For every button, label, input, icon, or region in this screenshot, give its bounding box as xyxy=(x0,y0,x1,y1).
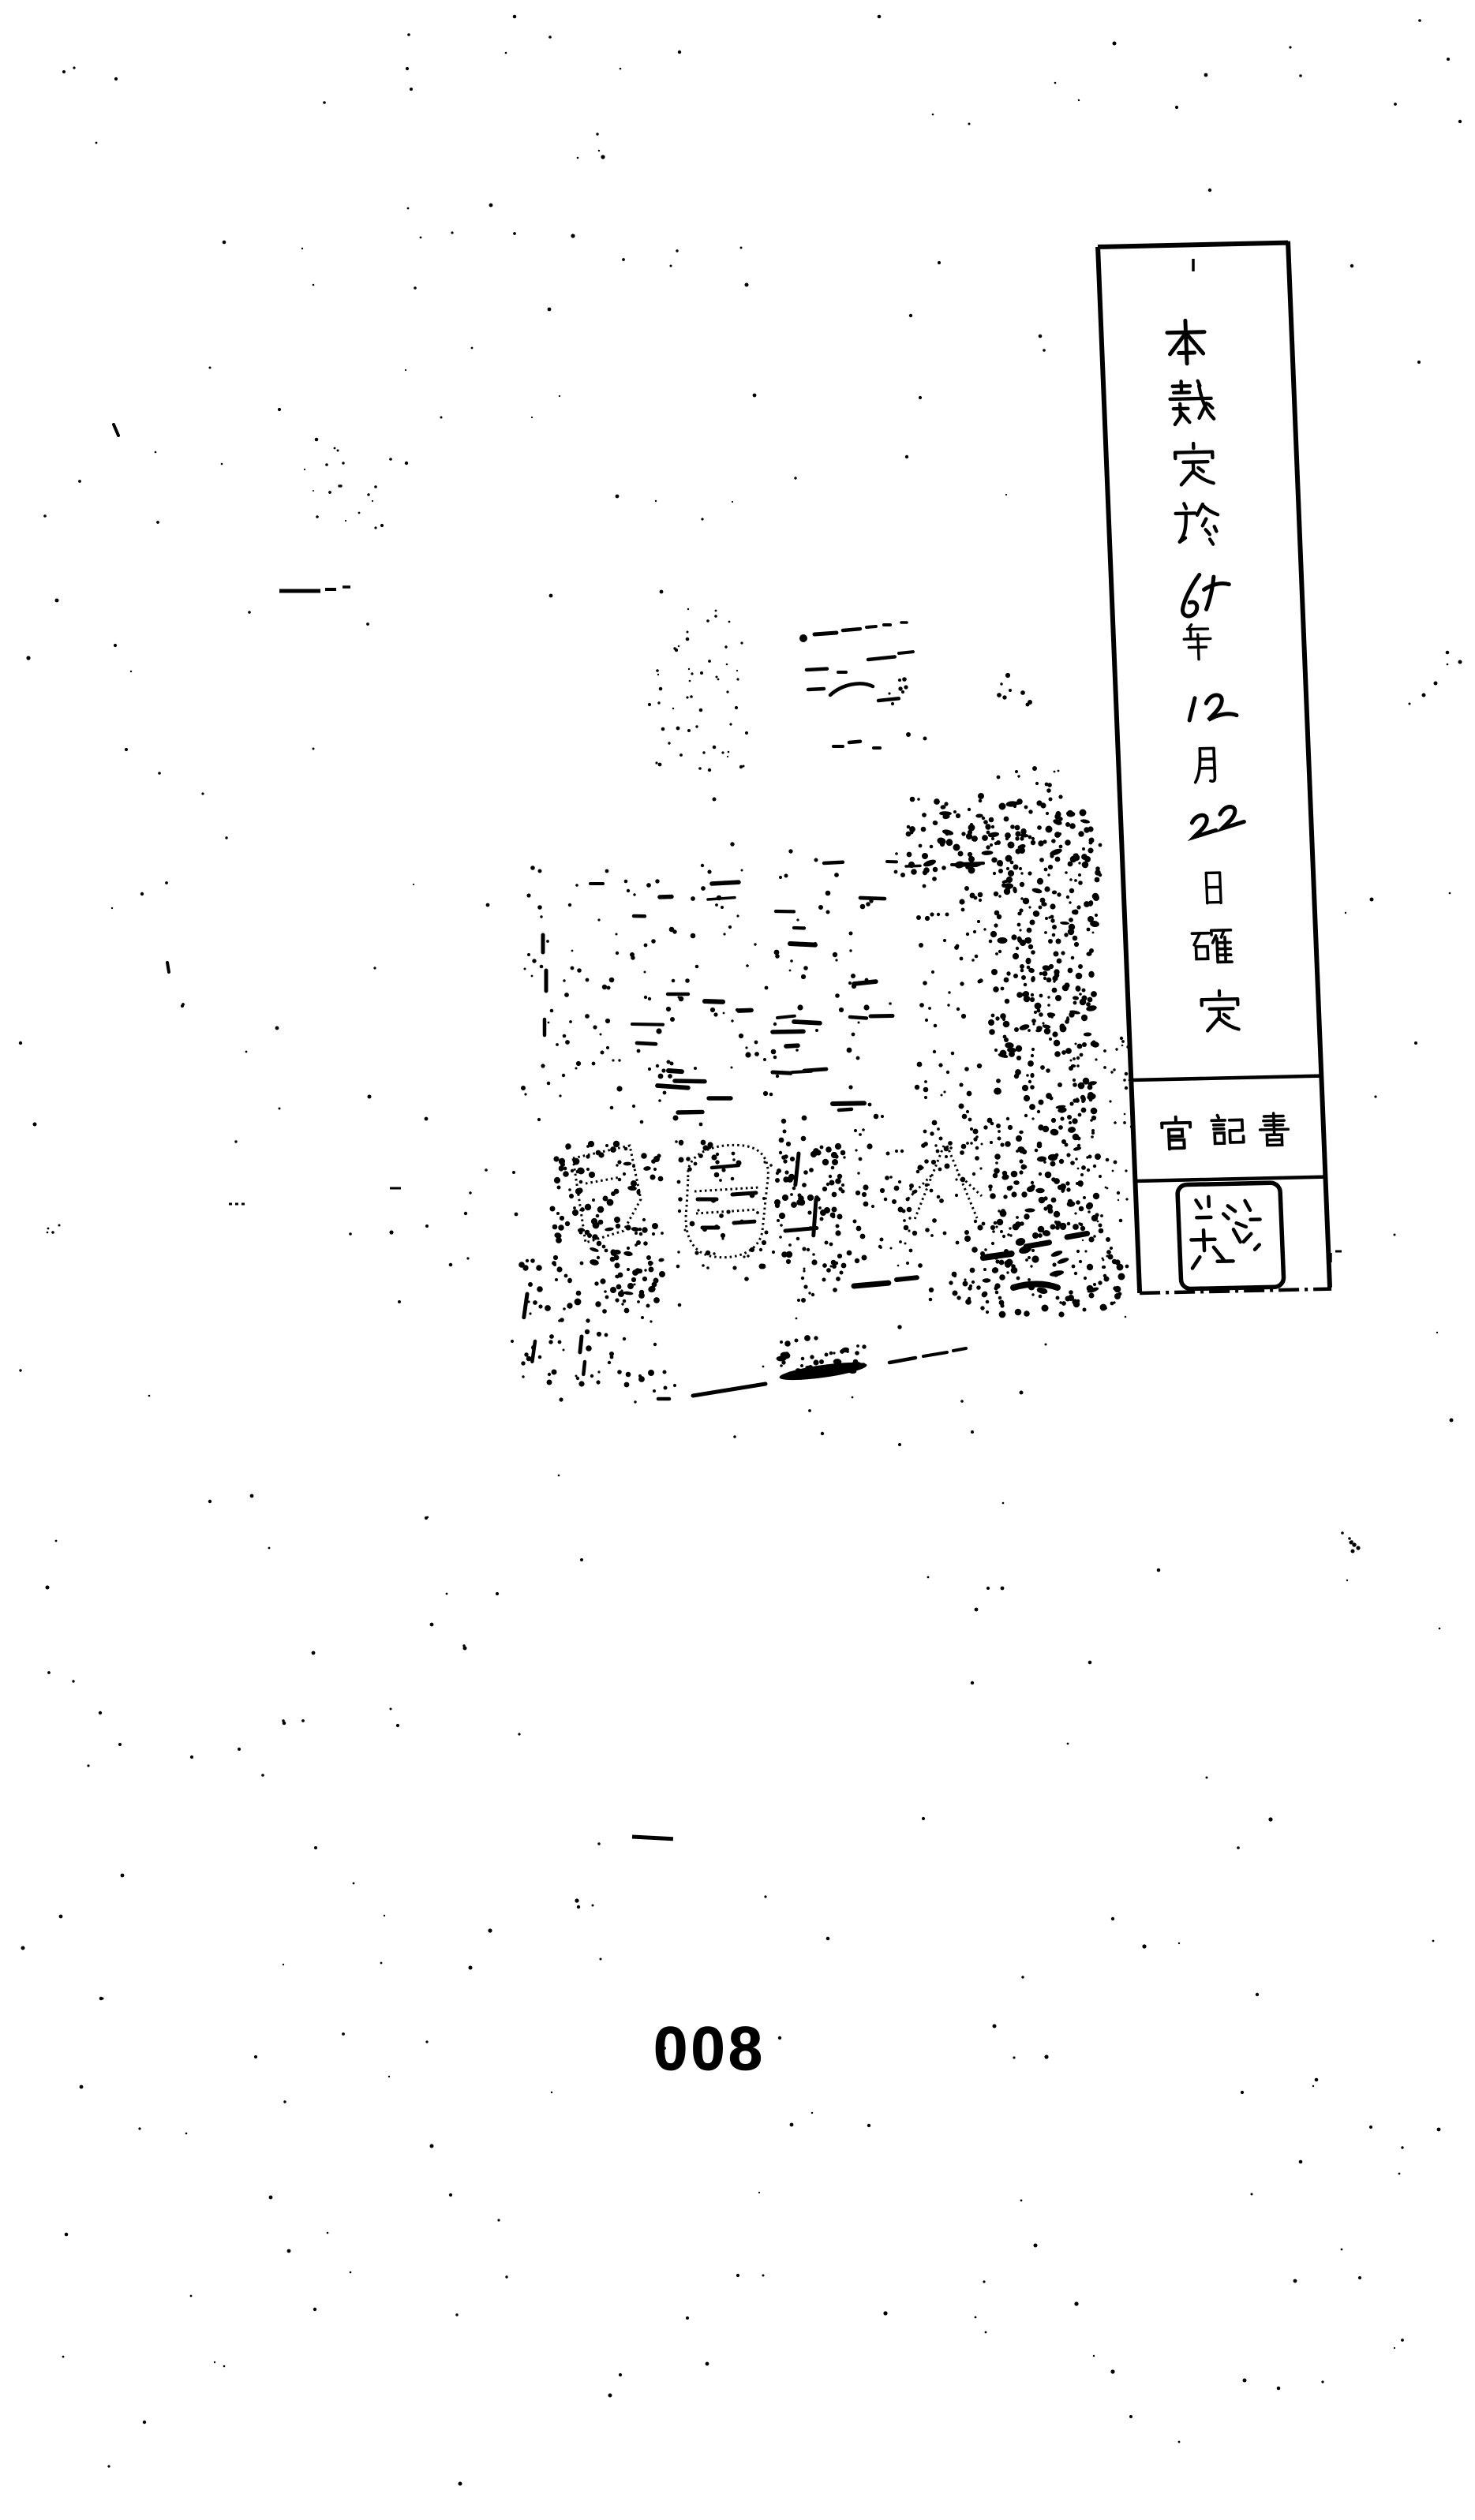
svg-text:008: 008 xyxy=(653,2013,766,2083)
